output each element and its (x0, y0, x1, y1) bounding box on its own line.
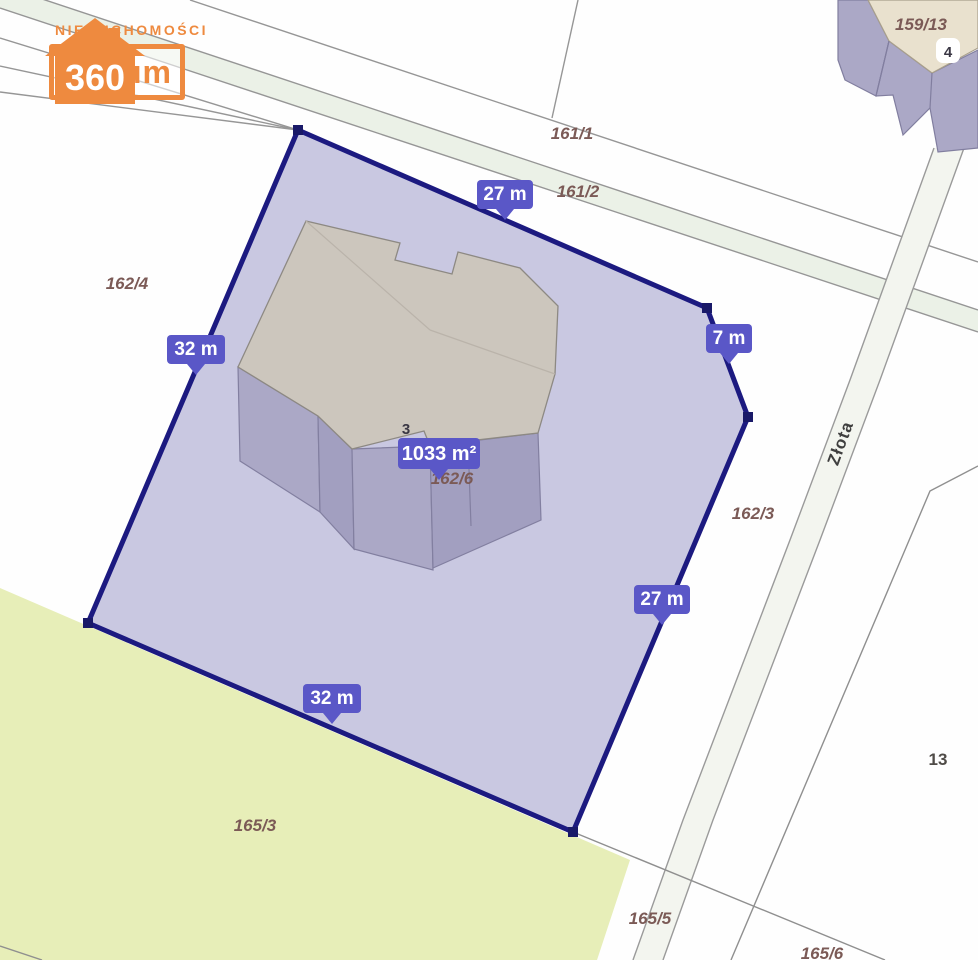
parcel-label-161-2: 161/2 (557, 182, 600, 201)
parcel-label-162-3: 162/3 (732, 504, 775, 523)
dimension-tooltip-left: 32 m (167, 335, 225, 364)
lokum360-logo: NIERUCHOMOŚCI Lokum 360 (45, 16, 267, 106)
dimension-tooltip-bottom: 32 m (303, 684, 361, 713)
dimension-value: 32 m (310, 689, 353, 708)
dimension-tooltip-right: 27 m (634, 585, 690, 614)
parcel-label-165-3: 165/3 (234, 816, 277, 835)
building-3-number: 3 (402, 421, 410, 438)
building-4-number: 4 (944, 44, 953, 61)
dimension-value: 32 m (174, 340, 217, 359)
map-viewport: 161/1 161/2 162/4 162/6 162/3 159/13 165… (0, 0, 978, 960)
parcel-label-161-1: 161/1 (551, 124, 594, 143)
logo-suffix: 360 (65, 57, 125, 98)
dimension-tooltip-top: 27 m (477, 180, 533, 209)
dimension-value: 7 m (713, 329, 746, 348)
parcel-label-165-6: 165/6 (801, 944, 844, 960)
dimension-value: 27 m (640, 590, 683, 609)
parcel-label-159-13: 159/13 (895, 15, 948, 34)
parcel-label-165-5: 165/5 (629, 909, 672, 928)
cadastral-map: 161/1 161/2 162/4 162/6 162/3 159/13 165… (0, 0, 978, 960)
parcel-label-13: 13 (929, 750, 948, 769)
dimension-tooltip-right-short: 7 m (706, 324, 752, 353)
area-tooltip: 1033 m² (398, 438, 480, 469)
dimension-value: 27 m (483, 185, 526, 204)
parcel-label-162-4: 162/4 (106, 274, 149, 293)
logo-house-icon: 360 (45, 16, 145, 108)
area-value: 1033 m² (402, 444, 477, 464)
